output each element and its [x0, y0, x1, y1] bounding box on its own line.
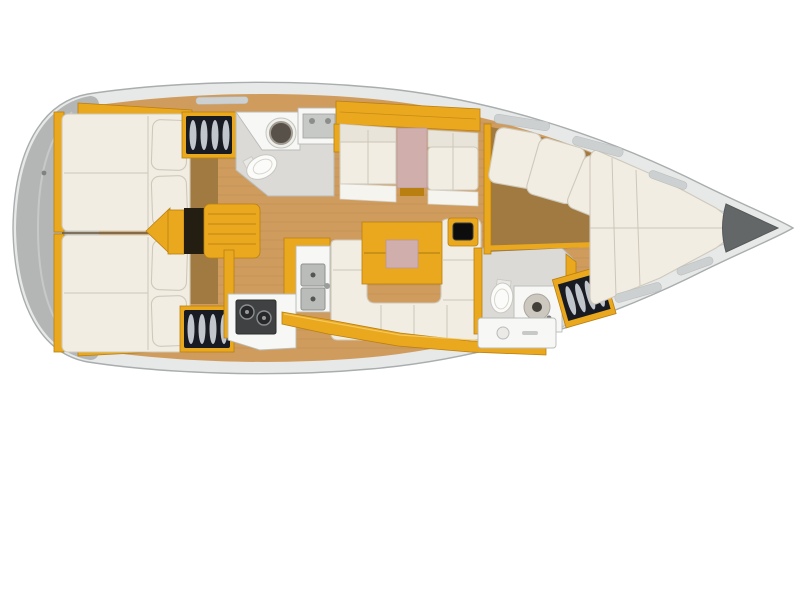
burner-dot — [262, 316, 266, 320]
boat-plan-stage — [0, 0, 800, 600]
salon-table-pink-inset — [386, 240, 418, 268]
bench-front — [428, 190, 478, 206]
faucet — [309, 118, 315, 124]
faucet — [324, 283, 330, 289]
step-side — [168, 210, 184, 254]
drawer-knob — [497, 327, 509, 339]
sink-drain — [311, 273, 316, 278]
drawer-handle — [522, 331, 538, 335]
vanity-drain — [532, 302, 542, 312]
settee-table-pink-inset — [397, 128, 427, 188]
stern-fitting-dot — [42, 171, 47, 176]
hanging-locker-aft-port — [182, 112, 236, 158]
faucet — [325, 118, 331, 124]
bench-front — [340, 184, 396, 202]
burner-dot — [245, 310, 249, 314]
bulkhead-strip — [484, 124, 491, 254]
deck-hatch — [196, 97, 248, 105]
table-support — [400, 188, 424, 196]
boat-plan-svg — [0, 0, 800, 600]
drawer-unit — [478, 318, 556, 348]
port-settee — [336, 101, 480, 206]
step-well — [184, 208, 204, 254]
sink-basin — [303, 114, 335, 138]
instrument-screen — [453, 223, 473, 240]
sink-drain — [311, 297, 316, 302]
